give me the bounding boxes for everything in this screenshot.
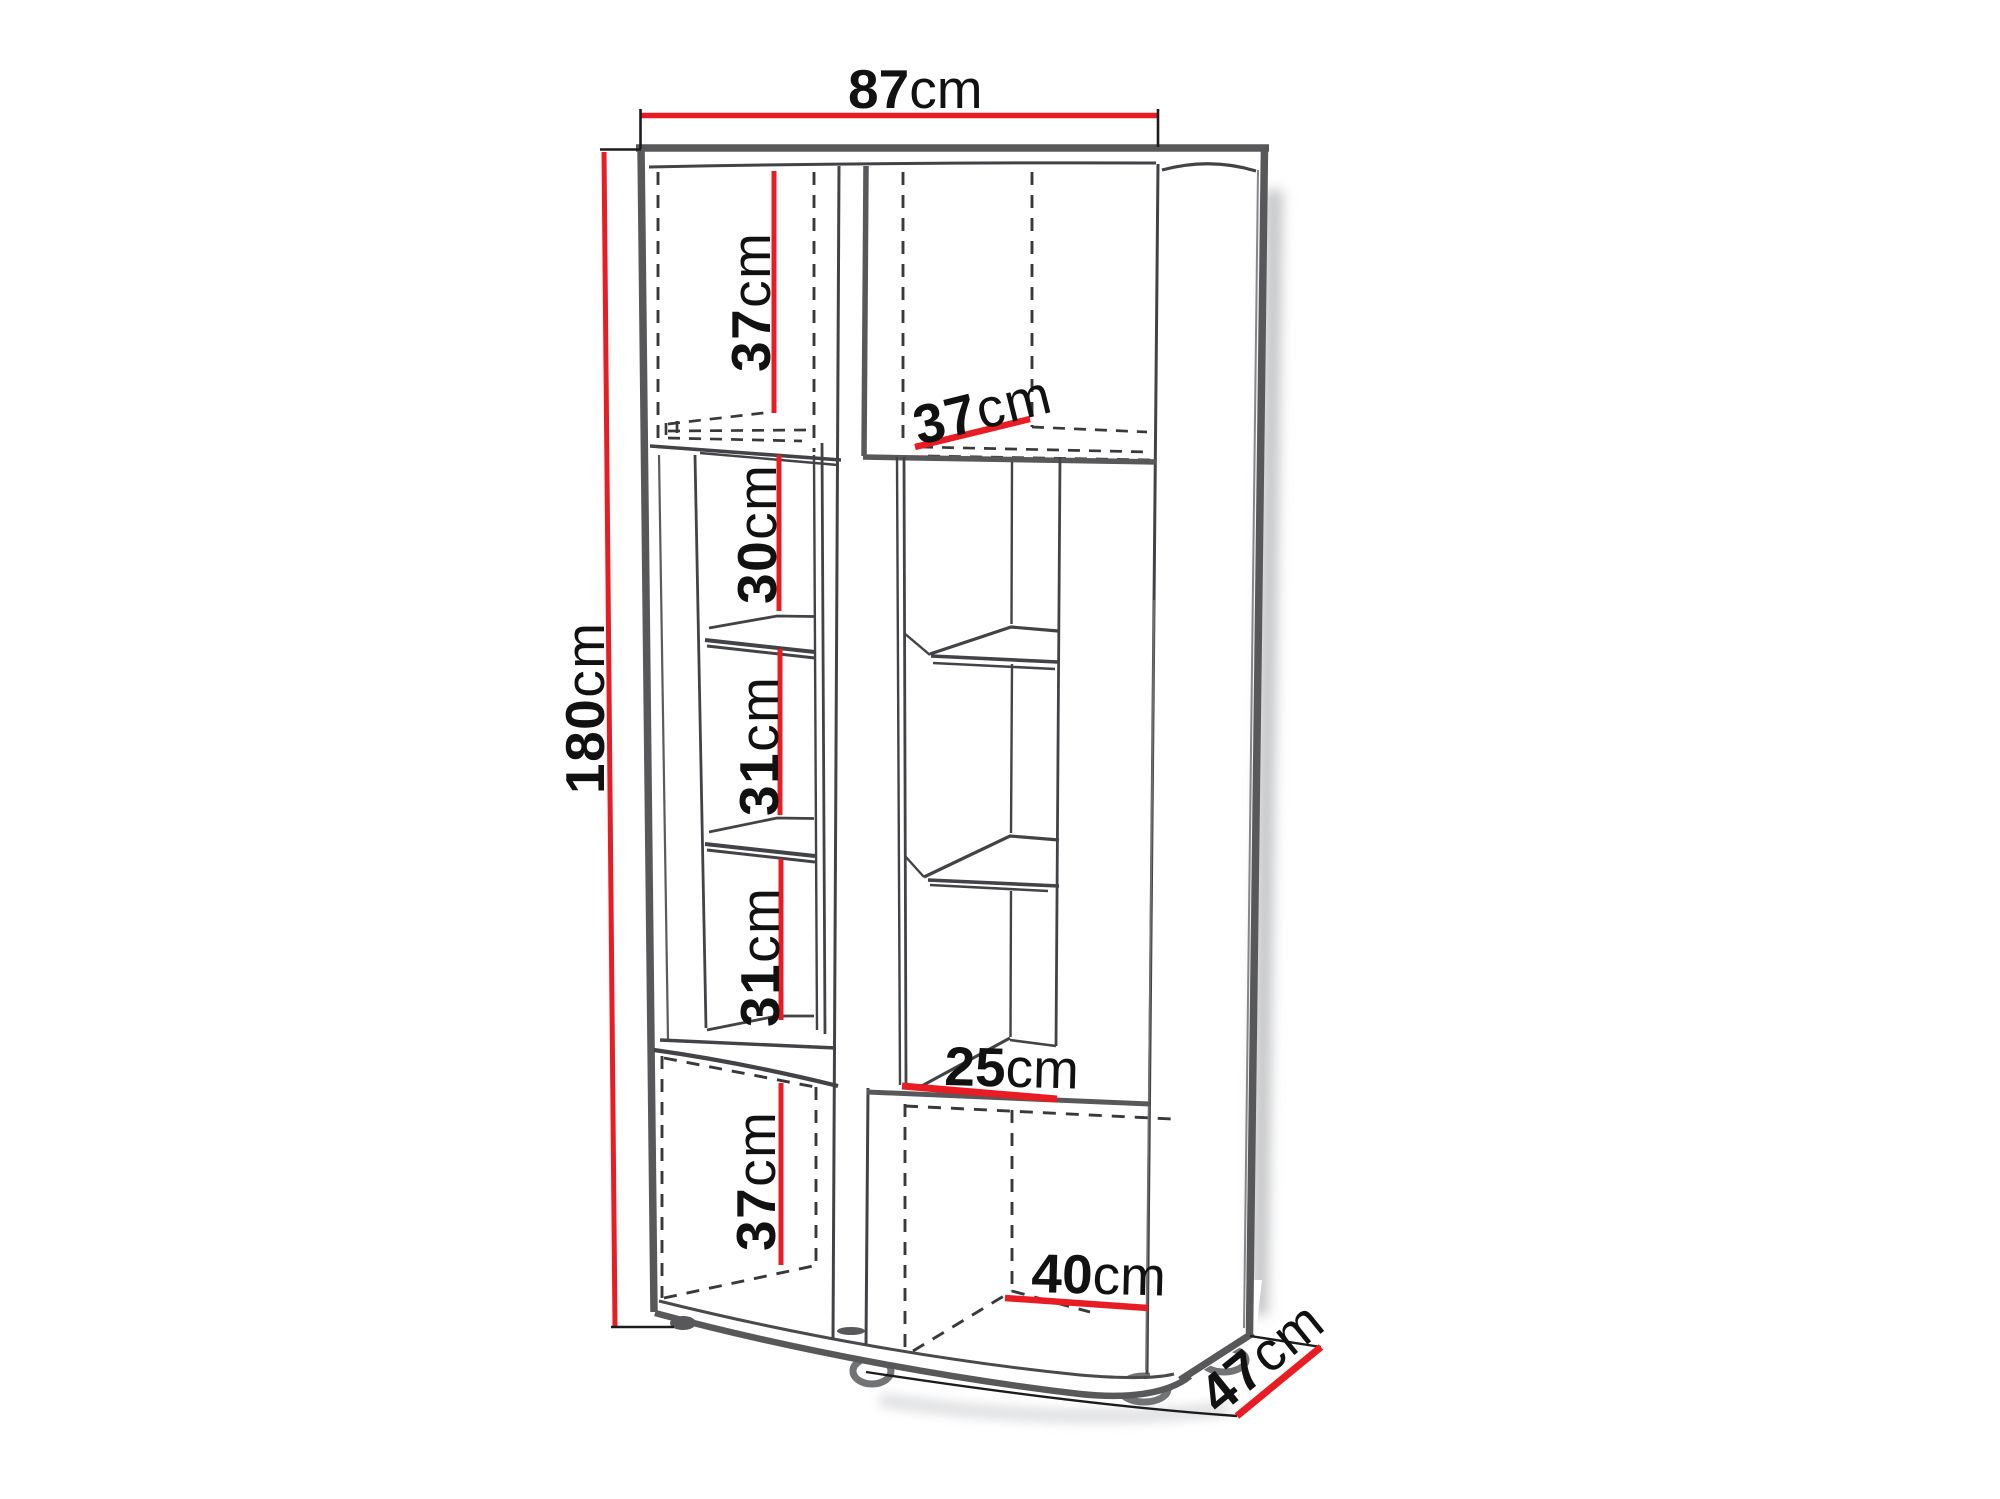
svg-text:31cm: 31cm	[728, 675, 790, 816]
svg-text:40cm: 40cm	[1031, 1242, 1167, 1308]
svg-text:180cm: 180cm	[554, 621, 616, 794]
svg-text:87cm: 87cm	[848, 58, 983, 120]
svg-text:37cm: 37cm	[720, 231, 782, 372]
svg-text:37cm: 37cm	[725, 1110, 787, 1251]
svg-text:31cm: 31cm	[729, 886, 791, 1027]
svg-text:30cm: 30cm	[726, 463, 788, 604]
svg-text:25cm: 25cm	[944, 1035, 1080, 1101]
